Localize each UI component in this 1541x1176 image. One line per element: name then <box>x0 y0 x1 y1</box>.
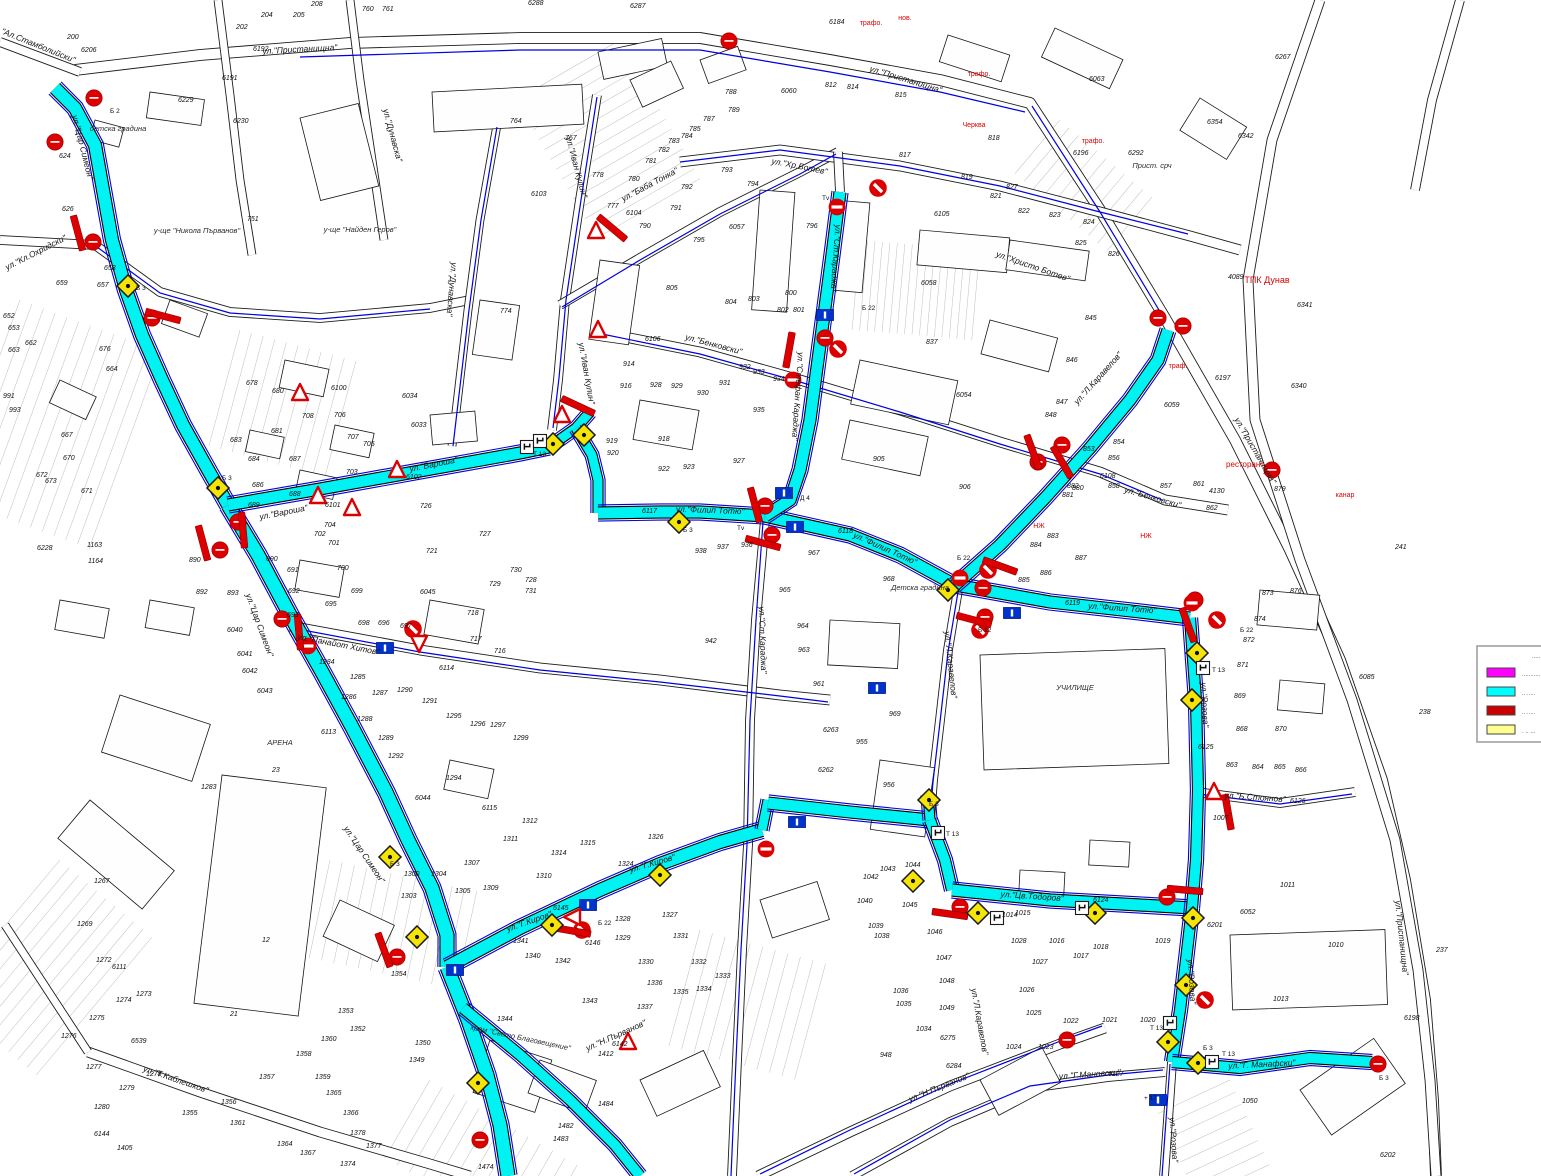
parcel-number: 963 <box>798 647 810 654</box>
valve-bar <box>303 644 314 647</box>
parcel-number: 777 <box>607 203 620 210</box>
building <box>194 775 326 1016</box>
hydrant-mark <box>476 1139 485 1141</box>
parcel-number: 6104 <box>626 210 642 217</box>
annotation-red-label: НЖ <box>1033 523 1045 530</box>
annotation-red-label: канар <box>1336 492 1355 499</box>
parcel-number: 922 <box>658 466 670 473</box>
diamond-dot <box>677 520 681 524</box>
parcel-number: 6196 <box>1073 150 1089 157</box>
parcel-number: 1295 <box>446 713 462 720</box>
parcel-number: 1294 <box>446 775 462 782</box>
parcel-number: 1273 <box>136 991 152 998</box>
parcel-line <box>769 957 800 1073</box>
map-viewport[interactable]: ул."Пристанищна"ул."Пристанищна"ул."Прис… <box>0 0 1541 1176</box>
parcel-number: 680 <box>272 388 284 395</box>
parcel-number: 1364 <box>277 1141 293 1148</box>
parcel-number: 881 <box>1062 492 1074 499</box>
parcel-number: 805 <box>666 285 678 292</box>
parcel-number: 1356 <box>221 1099 237 1106</box>
symbol-code-label: Т 13 <box>1212 667 1225 674</box>
sign-glyph <box>794 524 796 531</box>
parcel-number: 6191 <box>222 75 238 82</box>
legend-item-label: .. ..... <box>1522 710 1536 716</box>
parcel-number: 882 <box>1067 483 1079 490</box>
annotation-red-label: НЖ <box>1140 533 1152 540</box>
parcel-number: 787 <box>703 116 716 123</box>
parcel-number: 886 <box>1040 570 1052 577</box>
parcel-number: 707 <box>347 434 360 441</box>
parcel-number: 1337 <box>637 1004 654 1011</box>
parcel-number: 890 <box>189 557 201 564</box>
parcel-line <box>385 1080 430 1158</box>
parcel-number: 937 <box>717 544 730 551</box>
parcel-number: 1303 <box>401 893 417 900</box>
parcel-number: 6105 <box>934 211 950 218</box>
parcel-line <box>0 304 32 501</box>
parcel-line <box>867 241 875 331</box>
parcel-number: 1367 <box>300 1150 317 1157</box>
parcel-number: 1285 <box>350 674 366 681</box>
parcel-number: 969 <box>889 711 901 718</box>
building <box>917 230 1010 273</box>
hydrant-box-icon <box>1076 902 1089 915</box>
parcel-number: 1328 <box>615 916 631 923</box>
parcel-number: 6114 <box>439 665 454 672</box>
parcel-number: 934 <box>773 376 785 383</box>
parcel-number: 930 <box>697 390 709 397</box>
parcel-number: 874 <box>1254 616 1266 623</box>
parcel-number: 914 <box>623 361 635 368</box>
parcel-line <box>77 347 149 544</box>
building <box>55 600 109 638</box>
parcel-number: 1007 <box>1213 815 1230 822</box>
parcel-number: 1474 <box>478 1164 494 1171</box>
hydrant-box-icon <box>534 435 547 448</box>
hydrant-mark <box>979 587 988 589</box>
parcel-number: 688 <box>289 491 301 498</box>
hydrant-icon <box>85 234 101 250</box>
parcel-number: 6117 <box>642 508 658 515</box>
parcel-number: 6118 <box>838 528 853 535</box>
hydrant-mark <box>51 141 60 143</box>
symbol-code-label: + 17 <box>1144 1095 1157 1102</box>
hydrant-mark <box>89 241 98 243</box>
parcel-number: 965 <box>779 587 791 594</box>
parcel-number: 6145 <box>553 905 569 912</box>
parcel-number: 695 <box>325 601 337 608</box>
parcel-number: 626 <box>62 206 74 213</box>
parcel-lines <box>209 330 356 477</box>
parcel-number: 1034 <box>916 1026 932 1033</box>
parcel-line <box>875 242 883 332</box>
diamond-dot <box>1190 698 1194 702</box>
annotation-red-label: трафо. <box>968 71 991 78</box>
building <box>58 800 174 909</box>
sign-glyph <box>1157 1097 1159 1104</box>
symbol-code-label: Б 22 <box>862 305 876 312</box>
reducer-triangle-icon <box>344 499 360 515</box>
valve-bar <box>955 576 966 579</box>
parcel-number: 1358 <box>296 1051 312 1058</box>
parcel-number: 1300 <box>404 871 420 878</box>
parcel-number: 893 <box>227 590 239 597</box>
parcel-number: 6267 <box>1275 54 1292 61</box>
parcel-number: 1359 <box>315 1074 331 1081</box>
gate-valve-icon <box>195 525 211 562</box>
parcel-number: 1039 <box>868 923 884 930</box>
fire-hydrant-sign-icon <box>869 683 886 694</box>
parcel-number: 6230 <box>233 118 249 125</box>
parcel-number: 700 <box>337 565 349 572</box>
symbol-code-label: Б 3 <box>929 801 939 808</box>
parcel-number: 1342 <box>555 958 571 965</box>
parcel-number: 1011 <box>1280 882 1295 889</box>
symbol-code-label: Б 22 <box>598 920 612 927</box>
parcel-number: 1297 <box>490 722 507 729</box>
parcel-number: 1340 <box>525 953 541 960</box>
parcel-number: 730 <box>510 567 522 574</box>
parcel-number: 6127 <box>1108 1071 1125 1078</box>
parcel-number: 919 <box>606 438 618 445</box>
parcel-line <box>0 906 115 1044</box>
parcel-number: 729 <box>489 581 501 588</box>
hydrant-icon <box>1150 310 1166 326</box>
parcel-number: 1335 <box>673 989 689 996</box>
parcel-number: 848 <box>1045 412 1057 419</box>
parcel-number: 204 <box>260 12 273 19</box>
parcel-number: 727 <box>479 531 492 538</box>
building <box>851 360 958 425</box>
parcel-number: 1482 <box>558 1123 574 1130</box>
parcel-line <box>520 1158 565 1176</box>
parcel-number: 4089 <box>1228 274 1244 281</box>
building-outline <box>700 46 746 83</box>
water-pipe-parallel <box>229 455 550 513</box>
valve-bar-rect <box>783 332 796 369</box>
parcel-line <box>1180 1128 1253 1162</box>
parcel-number: 4130 <box>1209 488 1225 495</box>
parcel-number: 1286 <box>341 694 357 701</box>
parcel-number: 1314 <box>551 850 567 857</box>
parcel-number: 6229 <box>178 97 194 104</box>
parcel-number: 6057 <box>729 224 746 231</box>
building-outline <box>49 380 96 420</box>
parcel-line <box>0 883 88 1021</box>
parcel-number: 6124 <box>1093 897 1109 904</box>
parcel-number: 1311 <box>503 836 518 843</box>
parcel-number: 1341 <box>513 938 529 945</box>
parcel-number: 692 <box>288 588 300 595</box>
building-outline <box>145 600 194 635</box>
parcel-number: 726 <box>420 503 432 510</box>
building <box>760 881 829 938</box>
parcel-number: 1284 <box>319 659 335 666</box>
parcel-number: 1023 <box>1038 1044 1054 1051</box>
building-outline <box>980 649 1169 770</box>
parcel-number: 6198 <box>1404 1015 1420 1022</box>
parcel-number: 1018 <box>1093 944 1109 951</box>
parcel-number: 693 <box>287 612 299 619</box>
parcel-number: 690 <box>266 556 278 563</box>
parcel-number: 826 <box>1108 251 1120 258</box>
hydrant-mark <box>216 549 225 551</box>
hydrant-mark <box>1063 1039 1072 1041</box>
parcel-number: 1280 <box>94 1104 110 1111</box>
parcel-number: 785 <box>689 126 701 133</box>
parcel-number: 780 <box>628 176 640 183</box>
parcel-number: 706 <box>334 412 346 419</box>
hydrant-icon <box>975 580 991 596</box>
building-outline <box>58 800 174 909</box>
parcel-number: 6142 <box>612 1041 628 1048</box>
parcel-number: 792 <box>681 184 693 191</box>
parcel-number: 686 <box>252 482 264 489</box>
parcel-number: 1021 <box>1102 1017 1118 1024</box>
sign-glyph <box>796 819 798 826</box>
hydrant-mark <box>1179 325 1188 327</box>
parcel-number: 1365 <box>326 1090 342 1097</box>
parcel-number: 1326 <box>648 834 664 841</box>
poi-label: детска градина <box>90 124 147 133</box>
parcel-number: 1045 <box>902 902 918 909</box>
street-name-label: ул."Дунавска" <box>381 107 405 164</box>
map-canvas[interactable]: ул."Пристанищна"ул."Пристанищна"ул."Прис… <box>0 0 1541 1176</box>
parcel-number: 931 <box>719 380 731 387</box>
hydrant-mark <box>981 616 990 618</box>
parcel-number: 936 <box>741 542 753 549</box>
annotation-red-label: траф. <box>1169 363 1188 370</box>
parcel-number: 731 <box>525 588 537 595</box>
parcel-number: 6101 <box>325 502 341 509</box>
parcel-number: 818 <box>988 135 1000 142</box>
parcel-number: 1350 <box>415 1040 431 1047</box>
parcel-number: 6106 <box>645 336 661 343</box>
parcel-number: 6045 <box>420 589 436 596</box>
diamond-dot <box>658 873 662 877</box>
parcel-number: 865 <box>1274 764 1286 771</box>
parcel-number: 935 <box>753 407 765 414</box>
annotation-red-label: Черква <box>962 122 985 129</box>
parcel-number: 684 <box>248 456 260 463</box>
parcel-number: 6341 <box>1297 302 1313 309</box>
fire-hydrant-sign-icon <box>789 817 806 828</box>
parcel-number: 1315 <box>580 840 596 847</box>
parcel-number: 1047 <box>936 955 953 962</box>
valve-closed-icon <box>829 199 846 216</box>
parcel-number: 883 <box>1047 533 1059 540</box>
building <box>472 300 519 360</box>
gate-valve-icon <box>783 332 796 369</box>
parcel-line <box>325 361 356 477</box>
parcel-line <box>904 245 912 335</box>
parcel-number: 872 <box>1243 637 1255 644</box>
diamond-dot <box>582 433 586 437</box>
valve-closed-icon <box>952 570 969 587</box>
parcel-number: 6043 <box>257 688 273 695</box>
parcel-number: 802 <box>777 307 789 314</box>
legend: ................... ....... ...... .. ..… <box>1477 646 1541 742</box>
parcel-line <box>42 334 114 531</box>
parcel-number: 1276 <box>61 1033 77 1040</box>
parcel-number: 6275 <box>940 1035 956 1042</box>
hydrant-box-icon <box>521 441 534 454</box>
poi-label: УЧИЛИЩЕ <box>1055 683 1095 692</box>
hydrant-icon <box>47 134 63 150</box>
parcel-number: 6228 <box>37 545 53 552</box>
parcel-number: 796 <box>806 223 818 230</box>
parcel-number: 804 <box>725 299 737 306</box>
street-road-fill <box>95 245 470 318</box>
parcel-number: 6059 <box>1164 402 1180 409</box>
parcel-number: 1022 <box>1063 1018 1079 1025</box>
annotation-red-label: ресторант <box>1226 460 1264 469</box>
street-name-label: ул."Ст.Караджа" <box>757 605 769 675</box>
parcel-number: 6058 <box>921 280 937 287</box>
symbol-code-label: Б 3 <box>222 475 232 482</box>
street-name-label: ул."Бенковски" <box>1122 484 1183 510</box>
parcel-line <box>1197 1165 1270 1176</box>
building-outline <box>828 620 900 669</box>
parcel-number: 1312 <box>522 818 538 825</box>
parcel-number: 1277 <box>86 1064 103 1071</box>
parcel-number: 1412 <box>598 1051 614 1058</box>
hydrant-mark <box>725 40 734 42</box>
parcel-number: 1355 <box>182 1110 198 1117</box>
parcel-line <box>9 914 125 1052</box>
building <box>145 600 194 635</box>
parcel-number: 200 <box>66 34 79 41</box>
parcel-number: 23 <box>271 767 280 774</box>
parcel-number: 821 <box>990 193 1002 200</box>
fire-hydrant-sign-icon <box>580 900 597 911</box>
parcel-number: 1483 <box>553 1136 569 1143</box>
parcel-number: 671 <box>81 488 93 495</box>
symbol-code-label: Б 3 <box>683 527 693 534</box>
parcel-number: 918 <box>658 436 670 443</box>
parcel-number: 1038 <box>874 933 890 940</box>
parcel-number: 1378 <box>350 1130 366 1137</box>
parcel-number: 1035 <box>896 1001 912 1008</box>
building <box>1089 840 1130 867</box>
street-name-label: ул."Дунавска" <box>445 261 460 318</box>
parcel-line <box>890 243 898 333</box>
parcel-number: 927 <box>733 458 746 465</box>
parcel-number: 6115 <box>482 805 497 812</box>
parcel-number: 718 <box>467 610 479 617</box>
parcel-number: 6340 <box>1291 383 1307 390</box>
parcel-number: 658 <box>104 265 116 272</box>
no-entry-icon <box>869 179 887 197</box>
parcel-number: 6539 <box>131 1038 147 1045</box>
parcel-number: 6044 <box>415 795 431 802</box>
parcel-number: 1279 <box>119 1085 135 1092</box>
water-main <box>762 800 768 830</box>
building-outline <box>760 881 829 938</box>
legend-item-label: .. ..... <box>1522 691 1536 697</box>
building-outline <box>851 360 958 425</box>
parcel-number: 1017 <box>1073 953 1090 960</box>
parcel-number: 1028 <box>1011 938 1027 945</box>
parcel-number: 794 <box>747 181 759 188</box>
legend-swatch <box>1487 706 1515 715</box>
parcel-number: 1042 <box>863 874 879 881</box>
legend-swatch <box>1487 687 1515 696</box>
valve-bar-rect <box>195 525 211 562</box>
parcel-line <box>1174 1116 1247 1150</box>
sign-glyph <box>384 645 386 652</box>
parcel-number: 653 <box>8 325 20 332</box>
parcel-number: 1043 <box>880 866 896 873</box>
building <box>700 46 746 83</box>
annotation-red-label: ТПК Дунав <box>1244 275 1289 285</box>
parcel-number: 793 <box>721 167 733 174</box>
parcel-line <box>744 950 775 1066</box>
parcel-number: 1164 <box>88 558 103 565</box>
parcel-number: 1332 <box>691 959 707 966</box>
parcel-number: 208 <box>310 1 323 8</box>
parcel-number: 1288 <box>357 716 373 723</box>
parcel-number: 795 <box>693 237 705 244</box>
poi-label: у-ще "Найден Геров" <box>323 225 397 234</box>
parcel-number: 1278 <box>146 1071 162 1078</box>
parcel-number: 6100 <box>331 385 347 392</box>
poi-label: Прист. срч <box>1132 161 1171 170</box>
parcel-number: 837 <box>926 339 939 346</box>
parcel-number: 858 <box>1108 483 1120 490</box>
legend-item-label: ........... <box>1522 672 1541 678</box>
parcel-number: 846 <box>1066 357 1078 364</box>
hydrant-icon <box>212 542 228 558</box>
parcel-number: 1015 <box>1015 910 1031 917</box>
sign-glyph <box>876 685 878 692</box>
parcel-number: 691 <box>287 567 299 574</box>
parcel-line <box>209 330 240 446</box>
symbol-code-label: Б 3 <box>390 861 400 868</box>
parcel-number: 933 <box>753 369 765 376</box>
hydrant-box-icon <box>1164 1017 1177 1030</box>
parcel-number: 948 <box>880 1052 892 1059</box>
building <box>49 380 96 420</box>
parcel-number: 803 <box>748 296 760 303</box>
parcel-number: 788 <box>725 89 737 96</box>
building <box>1180 98 1247 159</box>
diamond-dot <box>976 911 980 915</box>
parcel-number: 967 <box>808 550 821 557</box>
sign-glyph <box>454 967 456 974</box>
parcel-number: 1048 <box>939 978 955 985</box>
symbol-code-label: Б 3 <box>136 285 146 292</box>
hydrant-icon <box>1175 318 1191 334</box>
parcel-number: 6042 <box>242 668 258 675</box>
parcel-line <box>882 243 890 333</box>
parcel-number: 812 <box>825 82 837 89</box>
parcel-line <box>221 333 252 449</box>
parcel-number: 1366 <box>343 1110 359 1117</box>
parcel-number: 1299 <box>513 735 529 742</box>
building-outline <box>1180 98 1247 159</box>
parcel-number: 1334 <box>696 986 712 993</box>
hydrant-box-icon <box>1206 1056 1219 1069</box>
parcel-number: 1269 <box>77 921 93 928</box>
parcel-number: 1361 <box>230 1120 246 1127</box>
building-outline <box>472 300 519 360</box>
hydrant-mark <box>768 534 777 536</box>
parcel-number: 681 <box>271 428 283 435</box>
parcel-number: 884 <box>1030 542 1042 549</box>
parcel-number: 822 <box>1018 208 1030 215</box>
building <box>640 1050 720 1116</box>
